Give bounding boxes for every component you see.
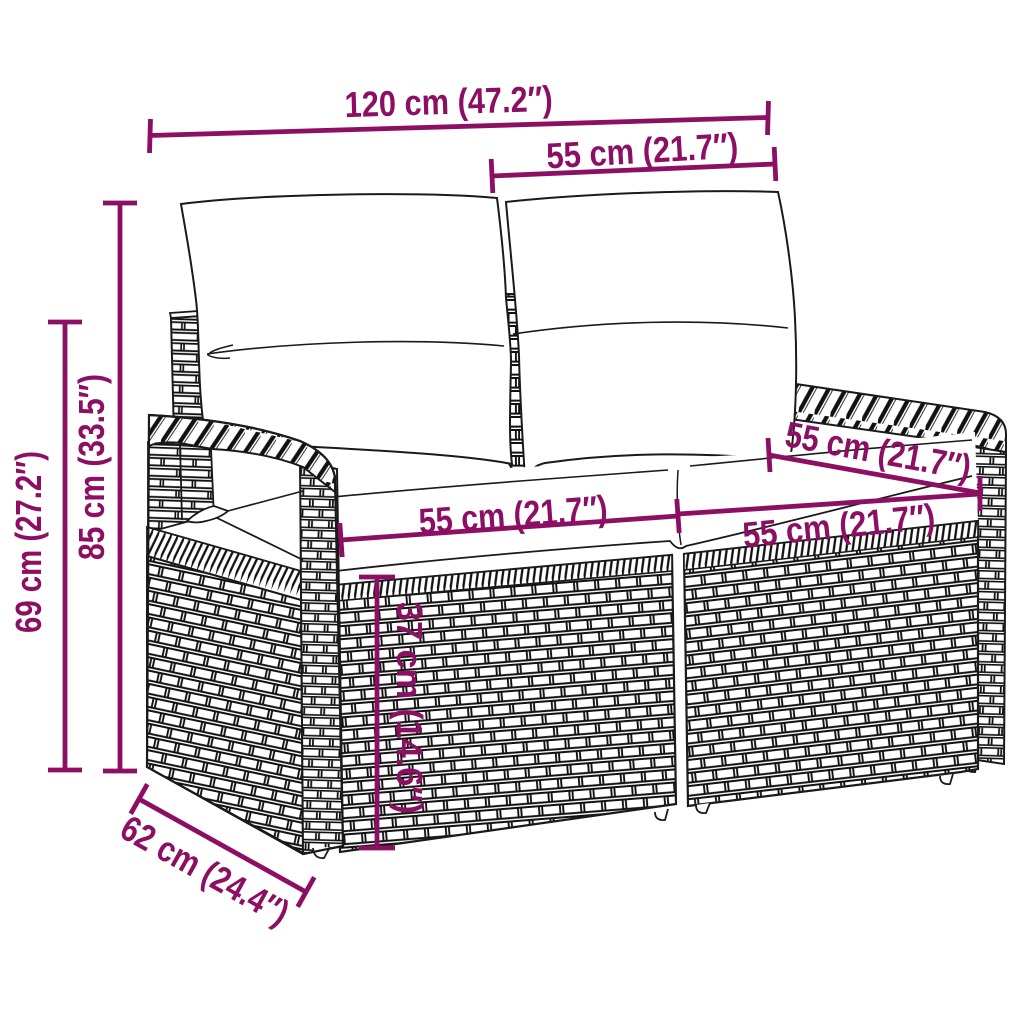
svg-text:85 cm (33.5″): 85 cm (33.5″) (71, 374, 112, 560)
svg-text:37 cm (14.6″): 37 cm (14.6″) (389, 602, 430, 814)
svg-text:120 cm (47.2″): 120 cm (47.2″) (344, 78, 553, 125)
svg-text:69 cm (27.2″): 69 cm (27.2″) (8, 451, 49, 633)
